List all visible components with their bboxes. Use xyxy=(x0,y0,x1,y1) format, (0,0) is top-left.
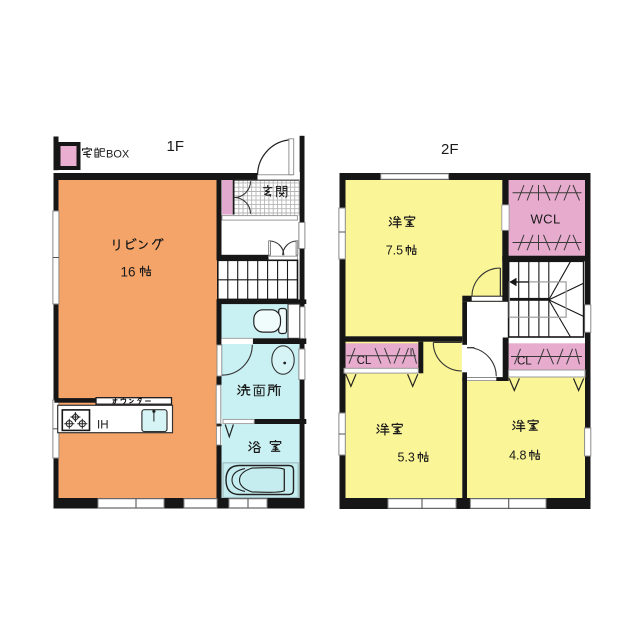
svg-text:IH: IH xyxy=(97,420,109,432)
svg-text:2F: 2F xyxy=(441,141,459,158)
svg-text:WCL: WCL xyxy=(531,212,561,227)
svg-text:16: 16 xyxy=(121,264,136,279)
svg-text:CL: CL xyxy=(357,355,372,367)
svg-text:4.8: 4.8 xyxy=(509,449,526,463)
svg-text:CL: CL xyxy=(517,356,532,368)
svg-text:5.3: 5.3 xyxy=(398,451,415,465)
svg-text:1F: 1F xyxy=(167,138,185,155)
svg-text:7.5: 7.5 xyxy=(386,244,403,258)
svg-text:BOX: BOX xyxy=(106,149,130,161)
